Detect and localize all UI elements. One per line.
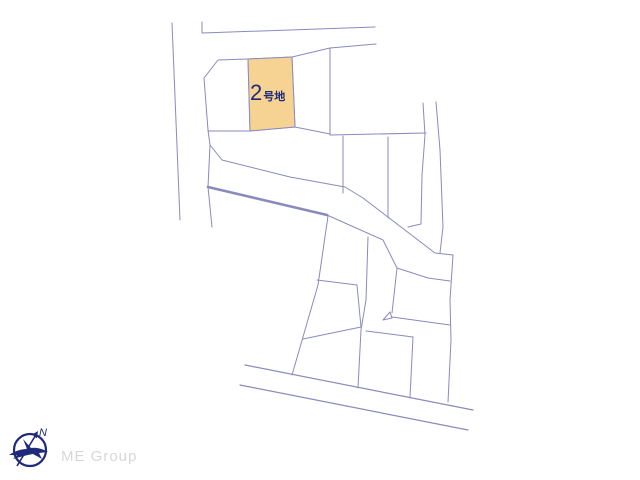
- cluster-left-boundary: [292, 216, 328, 375]
- cluster-divider-a: [317, 280, 357, 285]
- compass-north-icon: N: [8, 423, 60, 475]
- left-parcel-edge: [204, 78, 212, 227]
- parcel-boundary-lines: [172, 22, 473, 430]
- lot-2-label: 2号地: [250, 82, 285, 104]
- compass-group: N: [9, 427, 48, 466]
- top-road-line: [202, 22, 375, 33]
- corridor-line-east: [436, 102, 443, 253]
- large-parcel-box: [330, 48, 426, 135]
- diagonal-road-bottom-edge: [327, 215, 450, 281]
- bottom-road-bottom-edge: [240, 385, 468, 430]
- cluster-divider-d: [392, 317, 450, 325]
- cluster-divider-c: [303, 327, 361, 339]
- cluster-divider-f: [410, 337, 413, 397]
- cluster-flag-stem: [392, 268, 397, 313]
- brand-label: ME Group: [61, 449, 137, 466]
- cluster-divider-b: [357, 285, 361, 327]
- cluster-divider-e: [366, 331, 413, 337]
- diagonal-road-top-edge: [210, 145, 453, 255]
- cluster-right-boundary: [448, 255, 453, 402]
- lot-2-suffix: 号地: [263, 91, 285, 103]
- site-plan-svg: [0, 0, 640, 480]
- flag-triangle-mark: [383, 312, 392, 320]
- corridor-line-west: [408, 103, 425, 227]
- left-road-line: [172, 23, 180, 220]
- north-label: N: [39, 427, 47, 439]
- plot-map-canvas: 2号地 N ME Group: [0, 0, 640, 480]
- lot-2-number: 2: [250, 80, 262, 105]
- diagonal-road-thick-edge: [208, 187, 327, 215]
